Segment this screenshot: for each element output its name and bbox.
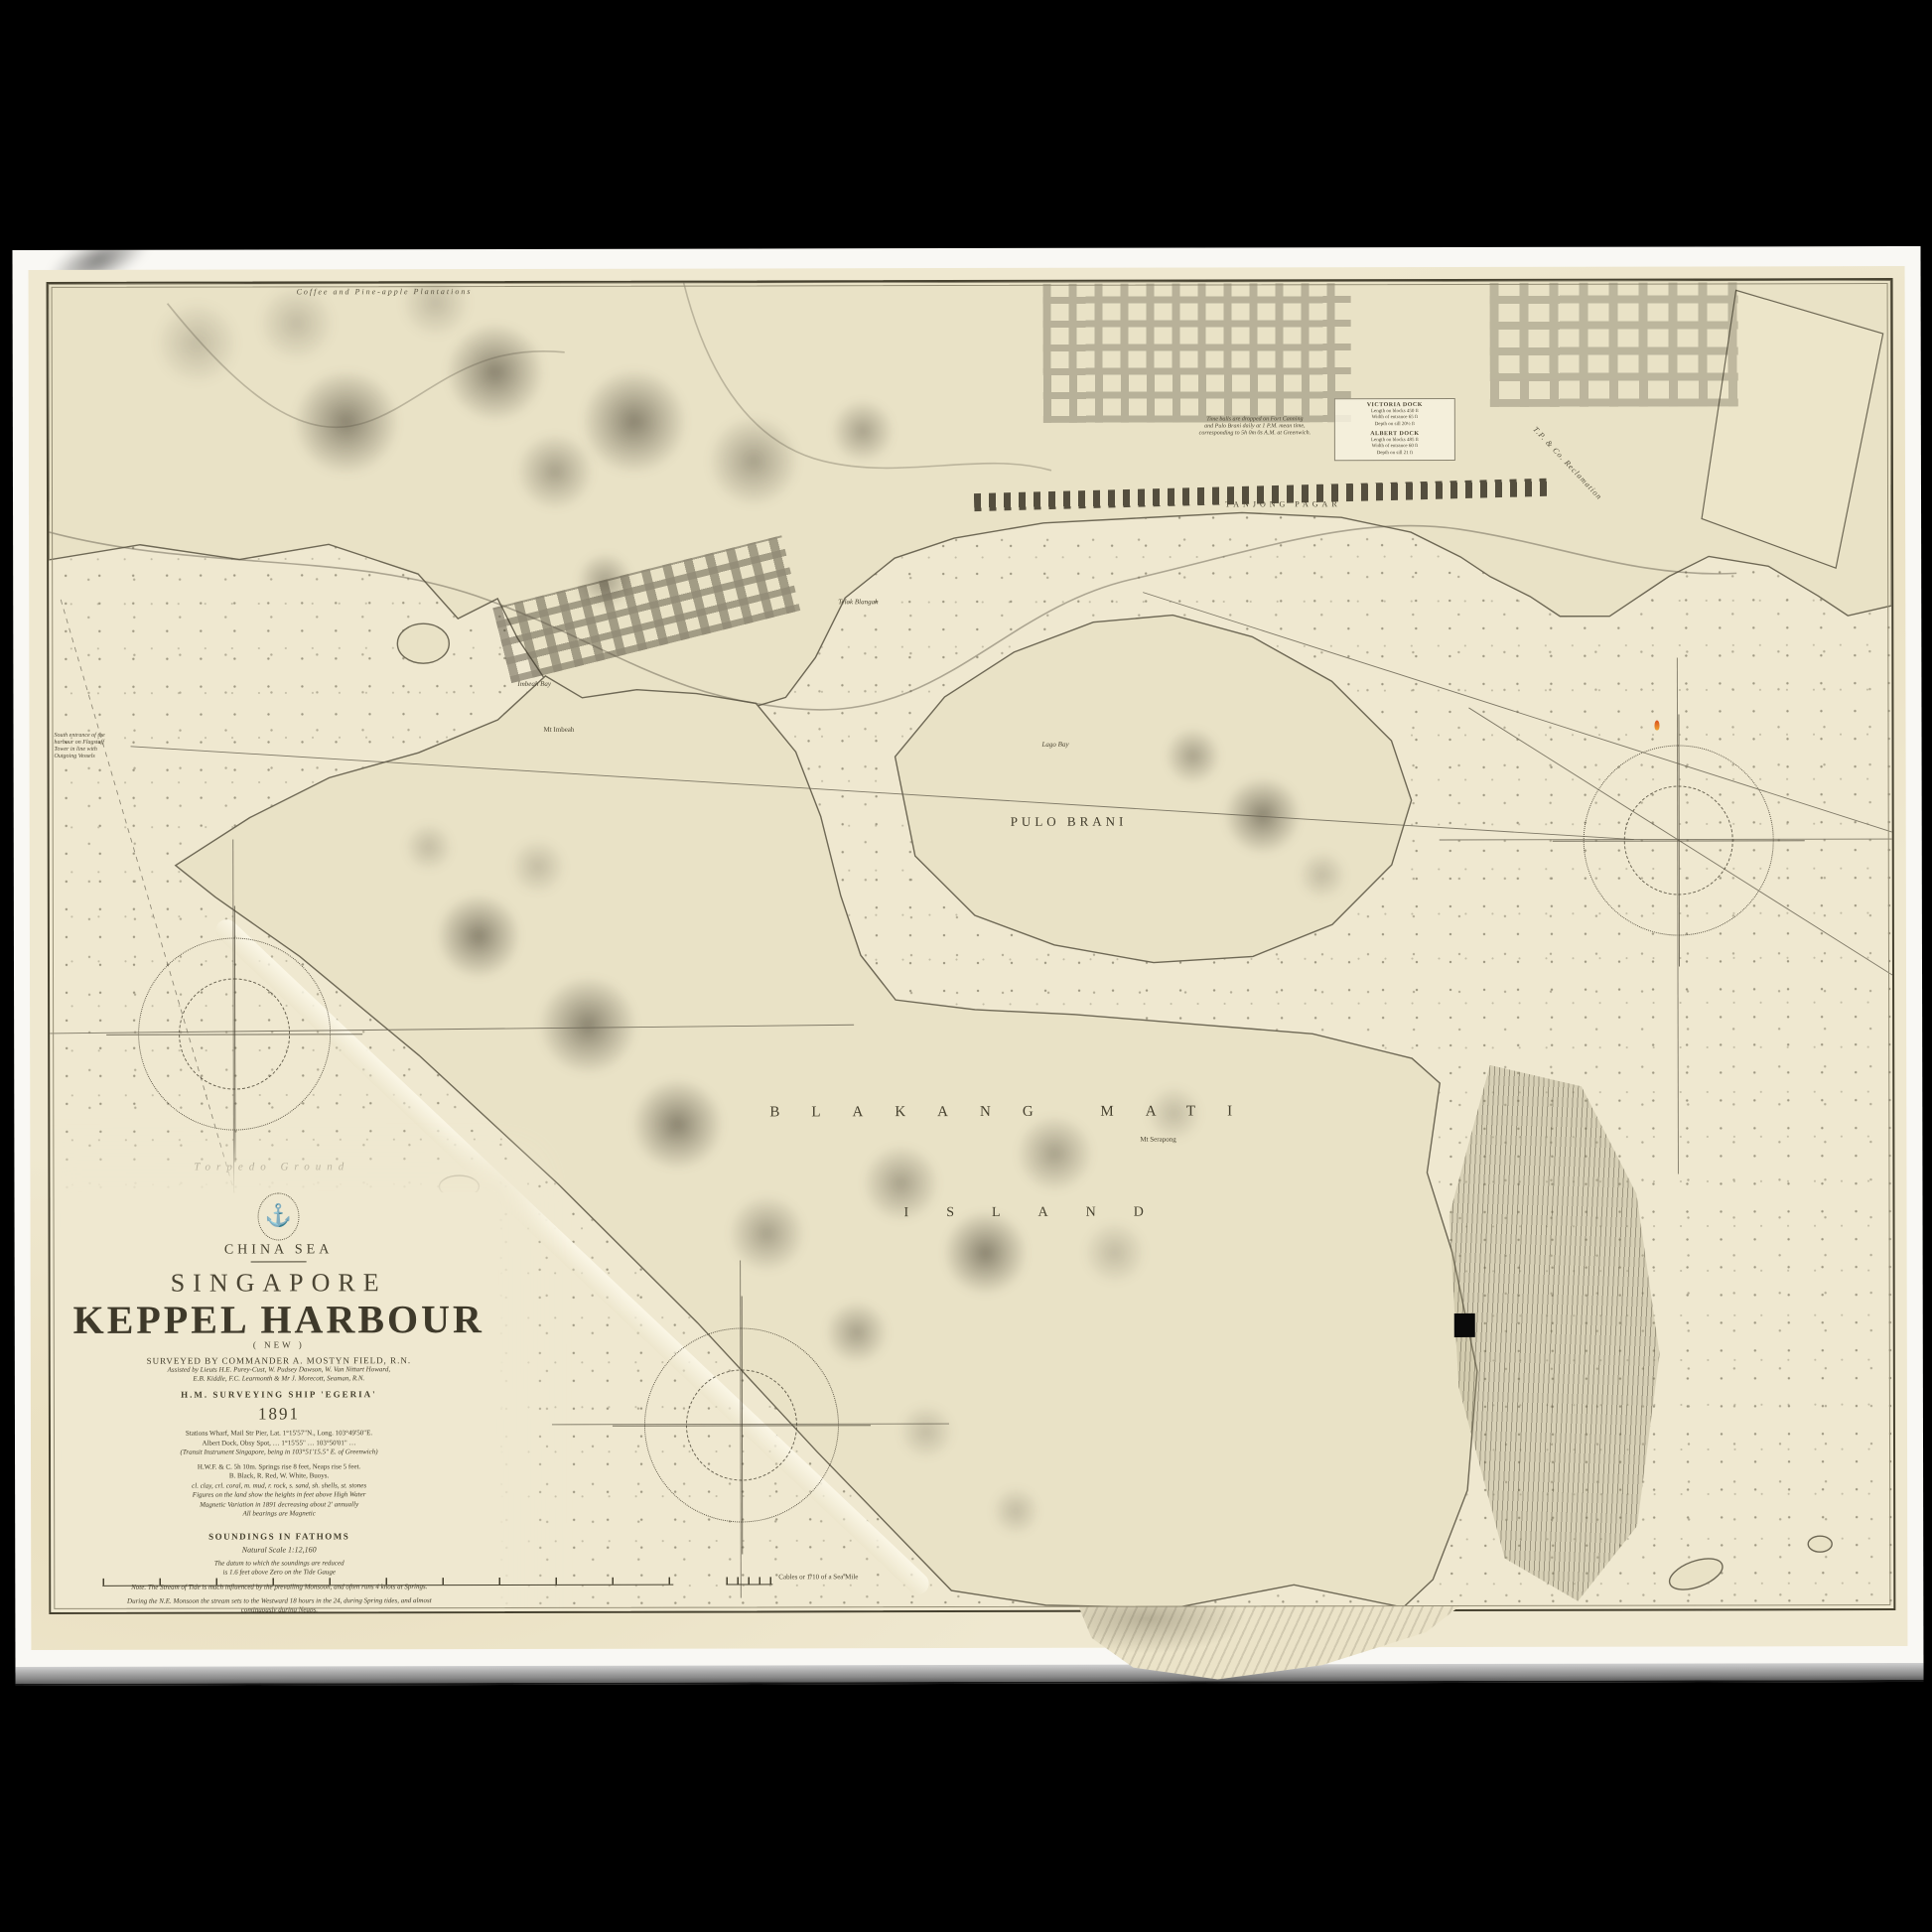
hill (812, 1288, 901, 1377)
label-mt-imbeah: Mt Imbeah (543, 726, 574, 734)
soundings-heading: SOUNDINGS IN FATHOMS (61, 1530, 497, 1541)
label-tanjong-pagar: TANJONG PAGAR (1225, 499, 1341, 508)
survey-ship: H.M. SURVEYING SHIP 'EGERIA' (61, 1389, 497, 1400)
label-pulo-brani: PULO BRANI (1011, 814, 1128, 830)
title-block: ⚓ CHINA SEA SINGAPORE KEPPEL HARBOUR ( N… (60, 1192, 497, 1614)
bearings-line: All bearings are Magnetic (61, 1509, 497, 1519)
tide-note-2: During the N.E. Monsoon the stream sets … (115, 1596, 443, 1614)
label-telok-blangah: Telok Blangah (838, 598, 878, 606)
label-lago-bay: Lago Bay (1042, 741, 1069, 749)
position-line3: (Transit Instrument Singapore, being in … (61, 1448, 497, 1457)
hill (1070, 1208, 1160, 1298)
hill (981, 1476, 1050, 1546)
label-coffee-plantations: Coffee and Pine-apple Plantations (297, 287, 473, 296)
datum-line2: is 1.6 feet above Zero on the Tide Gauge (61, 1568, 497, 1578)
sea-name: CHINA SEA (61, 1242, 497, 1259)
label-cables-scale: Cables or 1/10 of a Sea Mile (778, 1573, 858, 1581)
title-rule (251, 1261, 307, 1262)
dock-dimensions-table: VICTORIA DOCK Length on blocks 450 ft Wi… (1334, 398, 1455, 461)
label-mt-serapong: Mt Serapong (1140, 1136, 1175, 1144)
hill (818, 386, 907, 476)
town-buildings (1043, 283, 1351, 423)
label-imbeah-bay: Imbeah Bay (517, 680, 551, 688)
time-ball-note: Time balls are dropped on Fort Canning a… (1161, 416, 1349, 437)
hill (689, 396, 818, 525)
label-torpedo-ground: Torpedo Ground (194, 1161, 349, 1173)
hill (887, 1392, 966, 1471)
victoria-dock-row: Depth on sill 20½ ft (1339, 421, 1450, 428)
hill (498, 827, 578, 906)
compass-rose-east (1584, 745, 1774, 935)
hill (712, 1178, 821, 1288)
admiralty-seal-anchor-icon: ⚓ (257, 1192, 299, 1240)
framed-chart-print: Coffee and Pine-apple Plantations Telok … (12, 246, 1923, 1686)
hill (613, 1059, 742, 1188)
hill (500, 417, 610, 526)
survey-year: 1891 (61, 1404, 497, 1425)
albert-dock-row: Depth on sill 21 ft (1339, 450, 1450, 457)
chart-paper: Coffee and Pine-apple Plantations Telok … (29, 266, 1908, 1650)
label-blakang-mati: BLAKANG MATI (769, 1103, 1264, 1121)
hill (1288, 840, 1357, 909)
letterbox-background: Coffee and Pine-apple Plantations Telok … (0, 0, 1932, 1932)
natural-scale: Natural Scale 1:12,160 (61, 1544, 497, 1554)
south-entrance-note-line: Outgoing Vessels (55, 754, 164, 760)
chart-neatline-area: Coffee and Pine-apple Plantations Telok … (47, 278, 1896, 1614)
light-buoy-icon (1654, 721, 1659, 731)
south-entrance-note: South entrance of the harbour on Flagsta… (55, 733, 164, 760)
hill (394, 812, 464, 882)
sea-mile-scale-bar (102, 1578, 673, 1587)
black-square-mark (1454, 1313, 1475, 1337)
assisted-by-line2: E.B. Kiddle, F.C. Learmonth & Mr J. More… (61, 1374, 497, 1384)
cables-scale-bar (726, 1577, 772, 1585)
label-island: ISLAND (904, 1205, 1181, 1222)
compass-rose-south (644, 1327, 839, 1522)
frame-bottom-edge (15, 1663, 1923, 1686)
hill (138, 283, 257, 402)
compass-rose-west (138, 937, 331, 1130)
time-ball-note-line: corresponding to 5h 0m 0s A.M. at Greenw… (1161, 430, 1349, 437)
town-buildings-east (1490, 282, 1738, 407)
chart-title: KEPPEL HARBOUR (61, 1298, 497, 1342)
chart-region: SINGAPORE (61, 1268, 497, 1299)
hill (1153, 716, 1232, 795)
